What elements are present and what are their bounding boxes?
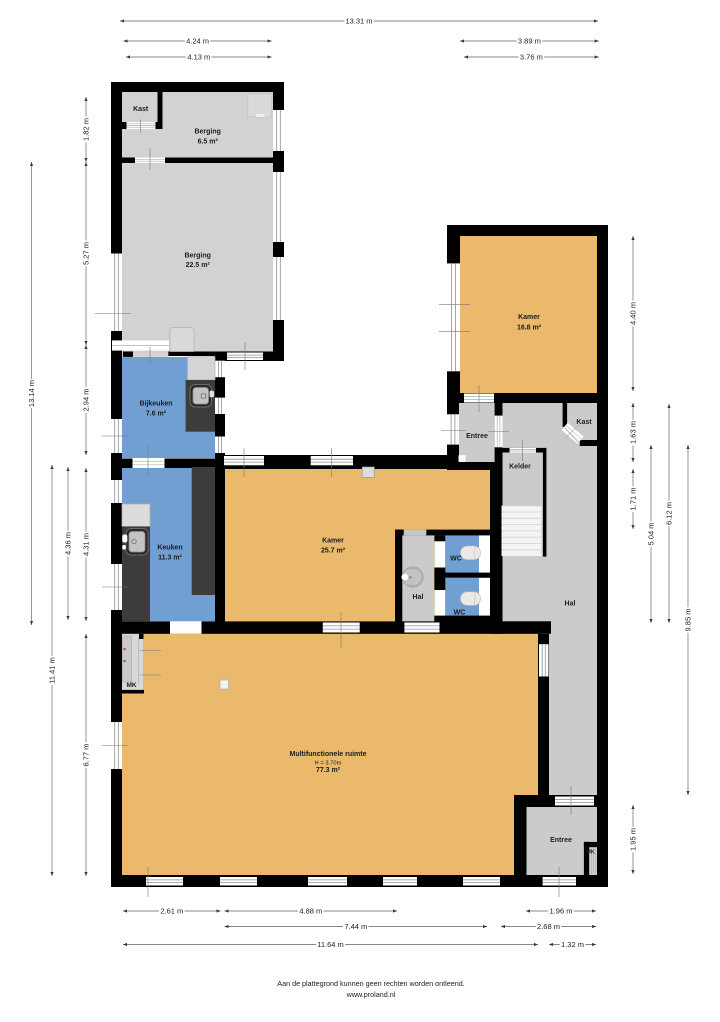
svg-text:Keuken: Keuken [157, 544, 182, 551]
svg-text:25.7 m²: 25.7 m² [321, 548, 346, 555]
svg-text:4.31 m: 4.31 m [81, 533, 90, 556]
svg-text:www.proland.nl: www.proland.nl [346, 990, 396, 999]
svg-text:Entree: Entree [550, 837, 572, 844]
svg-text:3.89 m: 3.89 m [518, 36, 541, 45]
svg-text:4.36 m: 4.36 m [63, 532, 72, 555]
svg-text:MK: MK [586, 850, 595, 856]
svg-text:1.95 m: 1.95 m [628, 828, 637, 851]
svg-text:1.32 m: 1.32 m [561, 940, 584, 949]
svg-text:6.12 m: 6.12 m [664, 502, 673, 525]
svg-text:Kamer: Kamer [322, 538, 344, 545]
svg-text:Hal: Hal [413, 594, 424, 601]
svg-text:2.94 m: 2.94 m [81, 389, 90, 412]
svg-text:Bijkeuken: Bijkeuken [139, 400, 172, 407]
svg-text:7.6 m²: 7.6 m² [146, 411, 167, 418]
svg-text:Multifunctionele ruimte: Multifunctionele ruimte [290, 751, 367, 758]
svg-text:11.64 m: 11.64 m [317, 940, 344, 949]
svg-text:Entree: Entree [466, 433, 488, 440]
svg-text:WC: WC [450, 556, 462, 563]
svg-text:Berging: Berging [194, 129, 220, 136]
svg-text:5.04 m: 5.04 m [646, 523, 655, 546]
svg-text:11.41 m: 11.41 m [47, 657, 56, 684]
svg-text:Kamer: Kamer [518, 314, 540, 321]
svg-text:5.27 m: 5.27 m [81, 242, 90, 265]
svg-text:Kast: Kast [576, 419, 592, 426]
svg-text:6.77 m: 6.77 m [81, 744, 90, 767]
svg-text:13.31 m: 13.31 m [345, 16, 372, 25]
svg-text:7.44 m: 7.44 m [344, 922, 367, 931]
svg-text:3.76 m: 3.76 m [520, 52, 543, 61]
svg-text:4.13 m: 4.13 m [187, 52, 210, 61]
svg-text:77.3 m²: 77.3 m² [316, 767, 341, 774]
svg-text:Kast: Kast [133, 106, 149, 113]
svg-text:4.88 m: 4.88 m [299, 906, 322, 915]
svg-text:9.85 m: 9.85 m [683, 609, 692, 632]
svg-text:6.5 m²: 6.5 m² [198, 139, 219, 146]
svg-text:Kelder: Kelder [509, 464, 531, 471]
svg-text:Aan de plattegrond kunnen geen: Aan de plattegrond kunnen geen rechten w… [277, 979, 464, 988]
svg-text:1.96 m: 1.96 m [550, 906, 573, 915]
svg-text:1.71 m: 1.71 m [628, 488, 637, 511]
svg-text:1.63 m: 1.63 m [628, 421, 637, 444]
svg-text:1.82 m: 1.82 m [81, 118, 90, 141]
svg-text:Berging: Berging [184, 253, 210, 260]
svg-text:Hal: Hal [565, 601, 576, 608]
svg-text:4.40 m: 4.40 m [628, 302, 637, 325]
svg-text:11.3 m²: 11.3 m² [158, 555, 182, 562]
svg-text:13.14 m: 13.14 m [27, 380, 36, 407]
svg-text:2.68 m: 2.68 m [537, 922, 560, 931]
svg-text:22.5 m²: 22.5 m² [186, 262, 211, 269]
svg-text:WC: WC [454, 610, 466, 617]
svg-text:2.61 m: 2.61 m [160, 906, 183, 915]
svg-text:16.8 m²: 16.8 m² [517, 325, 542, 332]
svg-text:4.24 m: 4.24 m [186, 36, 209, 45]
svg-text:H = 3.70m: H = 3.70m [315, 761, 342, 767]
svg-text:MK: MK [126, 682, 136, 689]
